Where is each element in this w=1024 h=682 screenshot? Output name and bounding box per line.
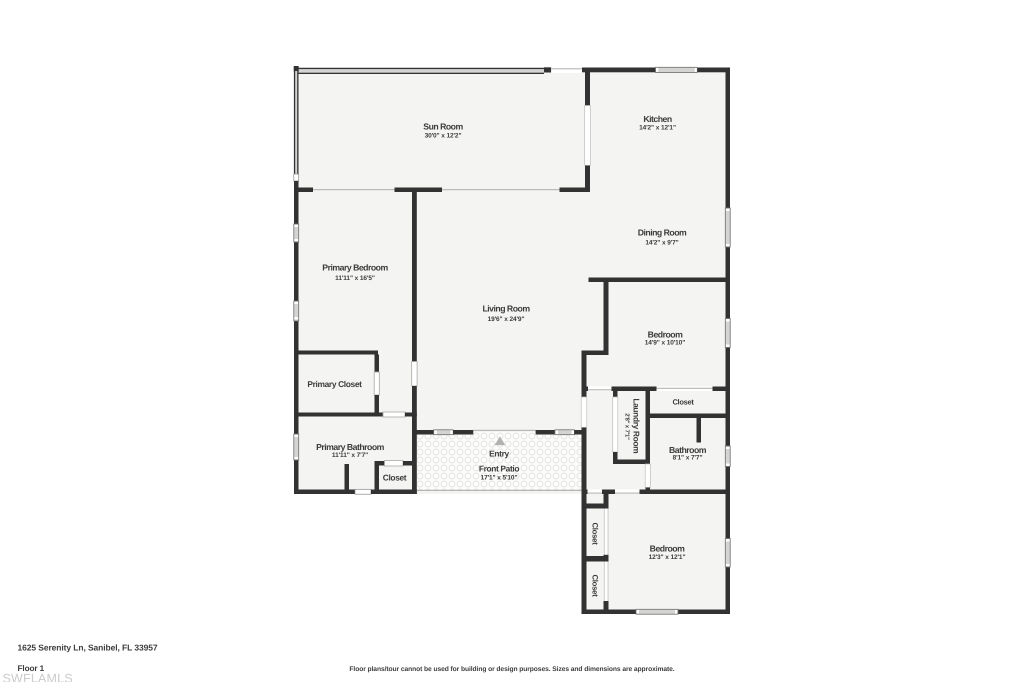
svg-text:Dining Room: Dining Room [638,228,687,238]
svg-text:Closet: Closet [672,397,694,406]
svg-text:Entry: Entry [489,449,509,459]
svg-text:Bedroom: Bedroom [648,329,683,339]
svg-text:SWFLAMLS: SWFLAMLS [3,672,73,682]
svg-text:12'3" x 12'1": 12'3" x 12'1" [649,554,686,561]
svg-text:Closet: Closet [383,472,407,482]
svg-text:Bathroom: Bathroom [669,445,707,455]
svg-text:30'0" x 12'2": 30'0" x 12'2" [425,133,462,140]
svg-text:11'11" x 16'5": 11'11" x 16'5" [335,275,375,282]
svg-text:14'2" x 12'1": 14'2" x 12'1" [639,125,676,132]
svg-text:Closet: Closet [590,574,599,597]
svg-text:Laundry Room: Laundry Room [632,398,642,453]
svg-text:Front Patio: Front Patio [479,464,520,474]
svg-text:Floor plans/tour cannot be use: Floor plans/tour cannot be used for buil… [349,666,674,673]
svg-text:Primary Bedroom: Primary Bedroom [322,263,388,273]
svg-text:8'1" x 7'7": 8'1" x 7'7" [673,454,703,461]
svg-text:Sun Room: Sun Room [423,122,463,132]
svg-text:Kitchen: Kitchen [643,114,672,124]
svg-text:14'9" x 10'10": 14'9" x 10'10" [645,340,685,347]
svg-text:Primary Closet: Primary Closet [307,379,362,389]
svg-text:Living Room: Living Room [482,304,530,314]
svg-text:17'1" x 5'10": 17'1" x 5'10" [481,474,518,481]
svg-text:19'6" x 24'9": 19'6" x 24'9" [488,316,525,323]
svg-text:11'11" x 7'7": 11'11" x 7'7" [332,452,368,459]
svg-text:Closet: Closet [590,522,599,545]
svg-text:Primary Bathroom: Primary Bathroom [316,442,385,452]
svg-text:14'2" x 9'7": 14'2" x 9'7" [645,240,678,247]
svg-text:2'8" x 7'1": 2'8" x 7'1" [624,413,631,440]
svg-text:1625 Serenity Ln, Sanibel, FL: 1625 Serenity Ln, Sanibel, FL 33957 [18,643,158,653]
svg-text:Bedroom: Bedroom [650,544,685,554]
